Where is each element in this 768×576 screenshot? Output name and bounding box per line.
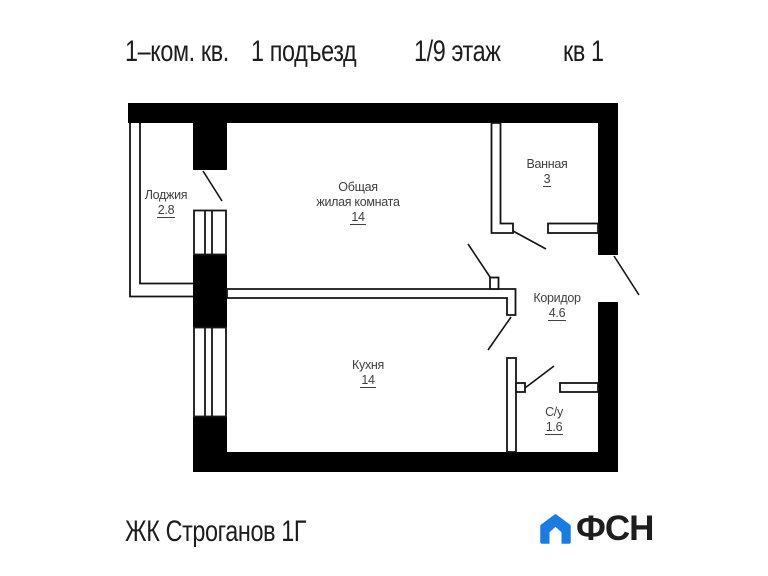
house-icon xyxy=(540,514,571,544)
entrance-door-leaf xyxy=(614,256,639,295)
fsn-logo-text: ФСН xyxy=(576,511,653,546)
room-name: Кухня xyxy=(308,358,428,373)
bathroom-door-leaf xyxy=(513,231,546,249)
room-label-corridor: Коридор 4.6 xyxy=(497,291,617,321)
room-label-bathroom: Ванная 3 xyxy=(487,157,607,187)
kitchen-door-leaf xyxy=(488,317,511,350)
room-area: 14 xyxy=(360,373,375,388)
room-label-loggia: Лоджия 2.8 xyxy=(106,188,226,218)
room-label-kitchen: Кухня 14 xyxy=(308,358,428,388)
wc-door-leaf xyxy=(525,366,554,388)
room-label-living: Общая жилая комната 14 xyxy=(278,180,438,225)
room-name: Ванная xyxy=(487,157,607,172)
room-area: 4.6 xyxy=(548,306,566,321)
room-name: жилая комната xyxy=(278,195,438,210)
room-area: 2.8 xyxy=(157,203,175,218)
room-name: Коридор xyxy=(497,291,617,306)
room-area: 1.6 xyxy=(545,420,563,435)
living-door-leaf xyxy=(468,244,490,277)
room-name: С/у xyxy=(494,405,614,420)
floor-plan-drawing xyxy=(0,0,768,576)
room-name: Лоджия xyxy=(106,188,226,203)
floor-plan-page: 1–ком. кв. 1 подъезд 1/9 этаж кв 1 xyxy=(0,0,768,576)
room-area: 3 xyxy=(543,172,552,187)
room-label-wc: С/у 1.6 xyxy=(494,405,614,435)
project-name: ЖК Строганов 1Г xyxy=(125,517,306,547)
room-name: Общая xyxy=(278,180,438,195)
room-area: 14 xyxy=(350,210,365,225)
window-kitchen-icon xyxy=(194,328,226,417)
fsn-logo: ФСН xyxy=(540,511,653,546)
